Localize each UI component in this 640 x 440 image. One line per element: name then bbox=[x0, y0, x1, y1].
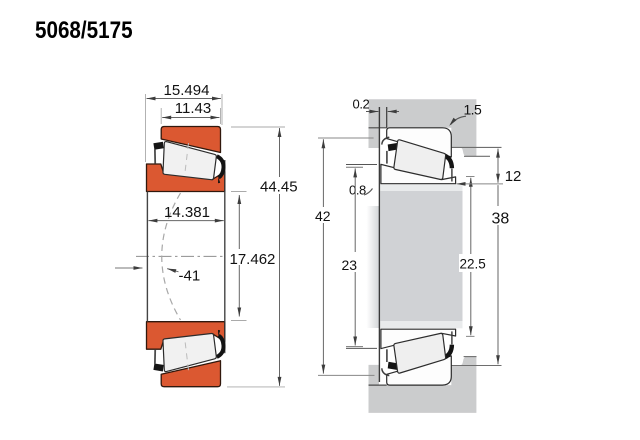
svg-text:23: 23 bbox=[342, 257, 358, 273]
svg-text:38: 38 bbox=[492, 211, 510, 228]
svg-text:22.5: 22.5 bbox=[460, 257, 486, 272]
svg-text:1.5: 1.5 bbox=[464, 102, 482, 118]
svg-text:11.43: 11.43 bbox=[175, 100, 211, 117]
svg-text:44.45: 44.45 bbox=[260, 179, 298, 196]
svg-text:42: 42 bbox=[315, 208, 331, 224]
svg-text:12: 12 bbox=[505, 168, 522, 185]
svg-text:0.8: 0.8 bbox=[349, 183, 366, 198]
svg-text:-41: -41 bbox=[179, 268, 201, 285]
svg-text:0.2: 0.2 bbox=[353, 97, 370, 112]
svg-text:14.381: 14.381 bbox=[164, 204, 210, 221]
svg-text:17.462: 17.462 bbox=[230, 251, 276, 268]
svg-text:15.494: 15.494 bbox=[164, 82, 210, 99]
